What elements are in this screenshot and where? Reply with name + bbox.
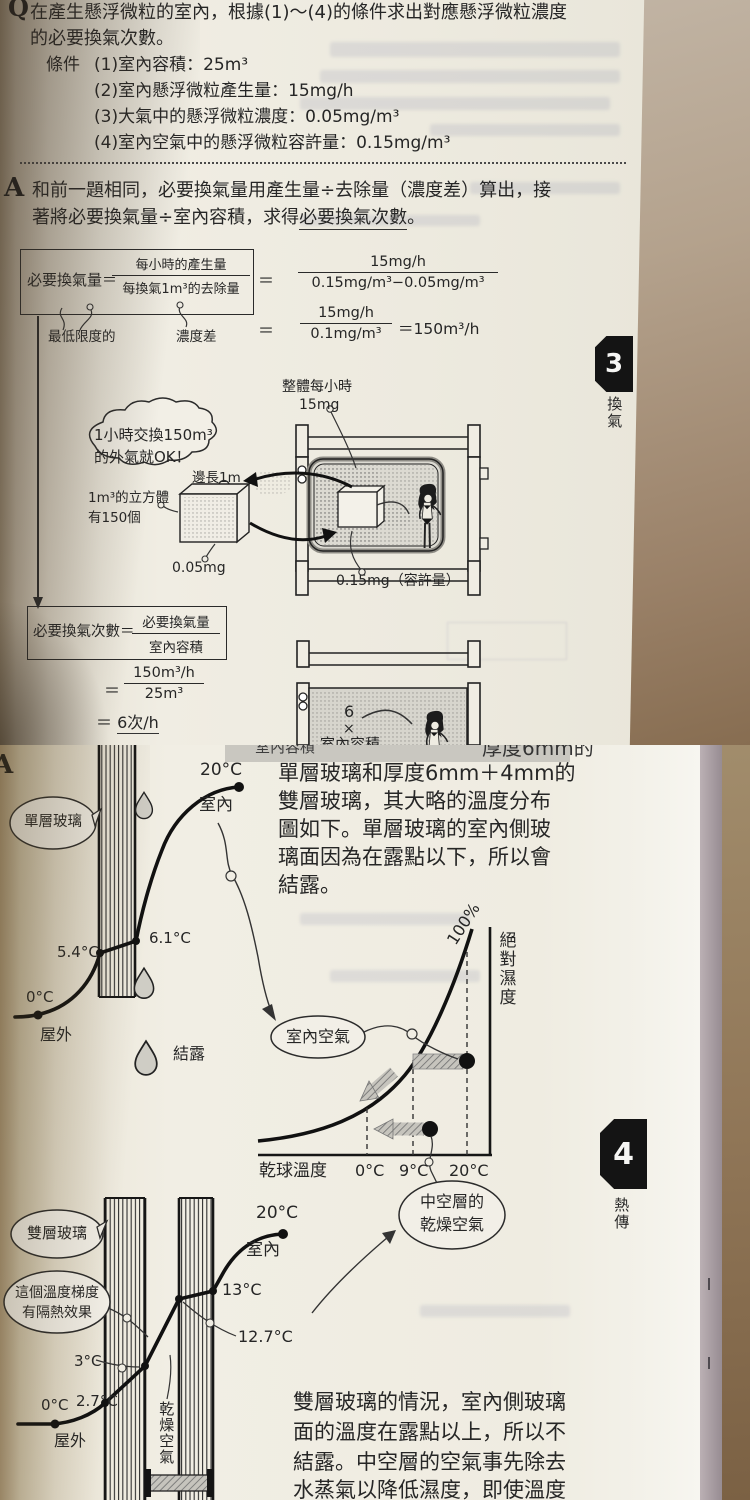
formula1-fraction: 每小時的產生量 每換氣1m³的去除量: [112, 254, 250, 297]
paragraph1-line-3: 圖如下。單層玻璃的室內側玻: [278, 817, 551, 841]
formula2-result: ＝ 6次/h: [96, 714, 159, 732]
paragraph2-line-2: 面的溫度在露點以上，所以不: [293, 1420, 566, 1444]
formula2-eq1-sign: ＝: [104, 682, 120, 700]
formula1-eq1-sign: ＝: [258, 272, 274, 290]
label-0-15mg: 0.15mg（容許量）: [336, 573, 460, 589]
formula1-eq1-denominator: 0.15mg/m³−0.05mg/m³: [298, 273, 498, 291]
room2-line-3: 室內容積: [320, 736, 380, 745]
formula1-result: ＝150m³/h: [398, 321, 479, 339]
chapter-tab-4-label: 熱傳: [612, 1197, 629, 1243]
label-concentration-diff: 濃度差: [176, 330, 217, 346]
double-temp-3: 3°C: [74, 1353, 102, 1370]
book-photo: Q 在產生懸浮微粒的室內，根據(1)～(4)的條件求出對應懸浮微粒濃度 的必要換…: [0, 0, 750, 1500]
question-line-1: 在產生懸浮微粒的室內，根據(1)～(4)的條件求出對應懸浮微粒濃度: [30, 3, 567, 24]
single-inner-surface-temp: 6.1°C: [149, 930, 191, 947]
chart-tick-0c: 0°C: [355, 1162, 384, 1180]
double-indoor-label: 室內: [246, 1241, 280, 1261]
single-outer-surface-temp: 5.4°C: [57, 944, 99, 961]
chapter-tab-3: 3: [595, 336, 633, 392]
label-total-per-hour: 整體每小時: [282, 379, 352, 395]
condition-4: (4)室內空氣中的懸浮微粒容許量：0.15mg/m³: [94, 134, 450, 154]
chart-x-axis-label: 乾球溫度: [259, 1162, 327, 1182]
double-temp-2-7: 2.7°C: [76, 1393, 118, 1410]
conditions-label: 條件: [46, 56, 80, 76]
paragraph1-line-2: 雙層玻璃，其大略的溫度分布: [278, 789, 551, 813]
formula1-denominator: 每換氣1m³的去除量: [112, 276, 250, 297]
formula2-fraction: 必要換氣量 室內容積: [132, 611, 220, 656]
chart-tick-20c: 20°C: [449, 1162, 489, 1180]
single-glass-bubble-label: 單層玻璃: [24, 814, 82, 831]
question-marker: Q: [8, 0, 29, 22]
indoor-air-bubble-label: 室內空氣: [286, 1028, 350, 1046]
chart-tick-9c: 9°C: [399, 1162, 428, 1180]
condensation-label: 結露: [173, 1045, 205, 1063]
formula2-lhs: 必要換氣次數＝: [33, 624, 135, 641]
answer-line-1: 和前一題相同，必要換氣量用產生量÷去除量（濃度差）算出，接: [32, 181, 551, 202]
chapter-tab-4-number: 4: [613, 1137, 634, 1172]
single-indoor-label: 室內: [199, 796, 233, 816]
condition-2: (2)室內懸浮微粒產生量：15mg/h: [94, 82, 354, 102]
paragraph1-line-1: 單層玻璃和厚度6mm＋4mm的: [278, 761, 576, 785]
cavity-air-bubble-line-1: 中空層的: [420, 1193, 484, 1211]
chapter-tab-3-number: 3: [605, 349, 623, 379]
label-0-05mg: 0.05mg: [172, 560, 226, 576]
chart-y-axis-label: 絕對濕度: [495, 931, 515, 1026]
single-outdoor-temp: 0°C: [26, 989, 54, 1006]
chapter-tab-3-label: 換氣: [605, 396, 622, 442]
formula1-eq1-fraction: 15mg/h 0.15mg/m³−0.05mg/m³: [298, 254, 498, 291]
formula2-numerator: 必要換氣量: [132, 611, 220, 634]
formula2-eq1-denominator: 25m³: [124, 684, 204, 702]
condition-3: (3)大氣中的懸浮微粒濃度：0.05mg/m³: [94, 108, 399, 128]
cavity-air-bubble-line-2: 乾燥空氣: [420, 1216, 484, 1234]
question-line-2: 的必要換氣次數。: [30, 29, 174, 50]
formula1-eq1-numerator: 15mg/h: [298, 254, 498, 273]
answer-line-2-post: 。: [407, 207, 425, 228]
formula1-eq2-numerator: 15mg/h: [300, 305, 392, 324]
gradient-bubble-line-2: 有隔熱效果: [22, 1305, 92, 1321]
double-outdoor-label: 屋外: [54, 1432, 86, 1450]
double-glass-bubble-label: 雙層玻璃: [27, 1225, 87, 1242]
double-outdoor-temp: 0°C: [41, 1397, 69, 1414]
formula1-eq2-denominator: 0.1mg/m³: [300, 324, 392, 342]
label-cube-count-2: 有150個: [88, 511, 141, 527]
formula1-lhs: 必要換氣量＝: [27, 272, 117, 289]
paragraph2-line-3: 結露。中空層的空氣事先除去: [293, 1450, 566, 1474]
formula2-eq1-numerator: 150m³/h: [124, 665, 204, 684]
answer-marker: A: [0, 751, 13, 781]
formula1-eq2-fraction: 15mg/h 0.1mg/m³: [300, 305, 392, 342]
chapter-tab-4: 4: [600, 1119, 647, 1189]
photo-bottom-page: 室內容積 厚度6mm的: [0, 745, 750, 1500]
label-edge-1m: 邊長1m: [192, 471, 241, 487]
answer-line-2-underlined: 必要換氣次數: [299, 207, 407, 230]
formula2-denominator: 室內容積: [132, 634, 220, 656]
paragraph2-line-1: 雙層玻璃的情況，室內側玻璃: [293, 1390, 566, 1414]
paragraph2-line-4: 水蒸氣以降低濕度，即使溫度: [293, 1478, 566, 1500]
gradient-bubble-line-1: 這個溫度梯度: [15, 1285, 99, 1301]
formula2-result-value: 6次/h: [117, 713, 159, 734]
double-indoor-temp: 20°C: [256, 1204, 298, 1224]
label-cube-count-1: 1m³的立方體: [88, 491, 169, 507]
dotted-separator: [20, 162, 626, 164]
answer-line-2: 著將必要換氣量÷室內容積，求得必要換氣次數。: [32, 208, 425, 229]
speech-bubble-line-2: 的外氣就OK！: [94, 449, 191, 466]
photo-top-page: Q 在產生懸浮微粒的室內，根據(1)～(4)的條件求出對應懸浮微粒濃度 的必要換…: [0, 0, 750, 745]
single-indoor-temp: 20°C: [200, 761, 242, 781]
label-minimum: 最低限度的: [48, 330, 116, 346]
paragraph1-line-4: 璃面因為在露點以下，所以會: [278, 845, 551, 869]
answer-marker: A: [4, 174, 24, 204]
condition-1: (1)室內容積：25m³: [94, 56, 248, 76]
double-temp-12-7: 12.7°C: [238, 1328, 293, 1346]
label-15mg: 15mg: [299, 397, 339, 413]
formula2-result-eq: ＝: [96, 713, 117, 732]
double-temp-13: 13°C: [222, 1281, 262, 1299]
formula1-eq2-sign: ＝: [258, 322, 274, 340]
speech-bubble-line-1: 1小時交換150m³: [94, 427, 213, 444]
answer-line-2-pre: 著將必要換氣量÷室內容積，求得: [32, 207, 299, 228]
formula1-numerator: 每小時的產生量: [112, 254, 250, 276]
single-outdoor-label: 屋外: [40, 1026, 72, 1044]
room2-line-1: 6: [344, 703, 354, 721]
dry-air-label: 乾燥空氣: [157, 1401, 174, 1479]
formula2-eq1-fraction: 150m³/h 25m³: [124, 665, 204, 702]
paragraph1-line-5: 結露。: [278, 873, 341, 897]
